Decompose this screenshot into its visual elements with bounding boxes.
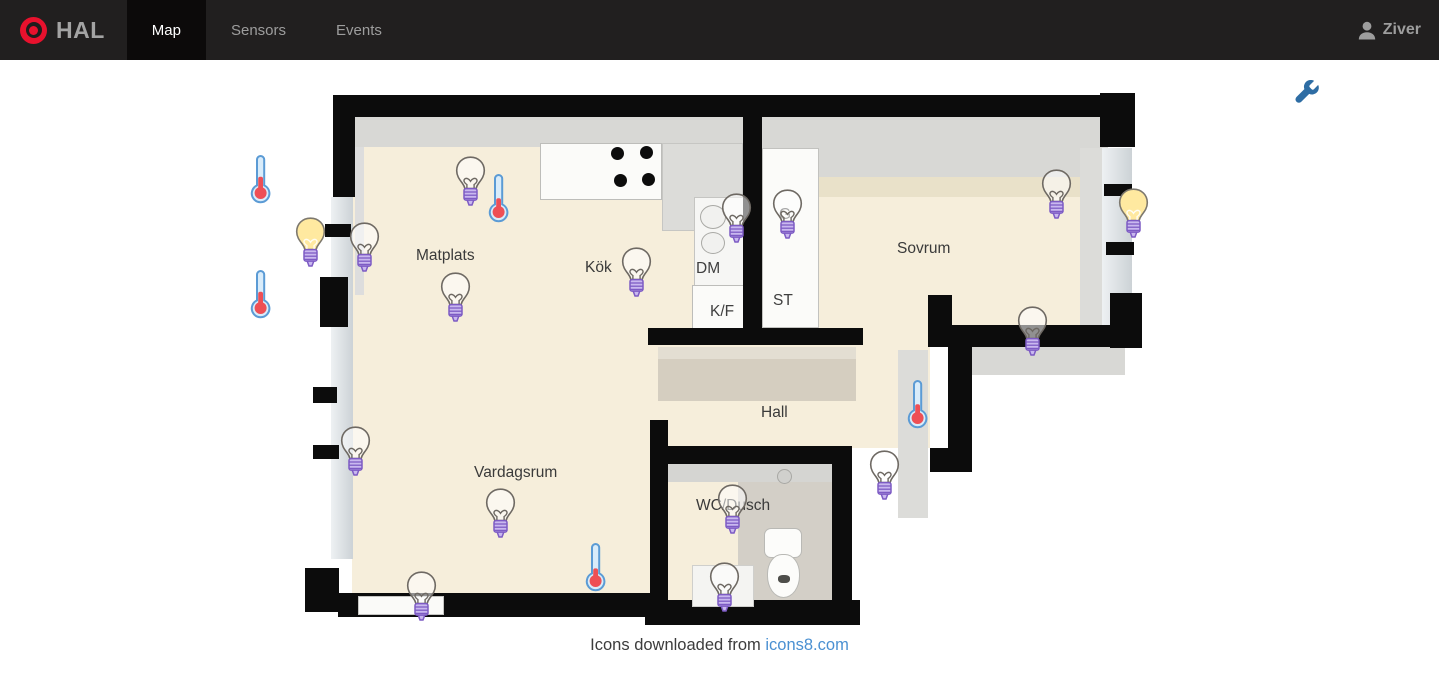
attribution: Icons downloaded from icons8.com: [0, 636, 1439, 655]
username: Ziver: [1383, 21, 1421, 39]
tab-sensors[interactable]: Sensors: [206, 0, 311, 60]
wall-hall-top: [648, 328, 863, 345]
stove-burner: [611, 147, 624, 160]
user-icon: [1357, 20, 1377, 41]
thermometer-icon[interactable]: [487, 171, 510, 223]
attribution-text: Icons downloaded from: [590, 636, 765, 654]
wall-top: [333, 95, 1135, 117]
hall-pillar: [898, 350, 928, 518]
stove-burner: [640, 146, 653, 159]
nav-tabs: MapSensorsEvents: [127, 0, 407, 60]
hall-wardrobe-top: [658, 347, 856, 359]
icons8-link[interactable]: icons8.com: [765, 636, 848, 654]
room-label-sovrum: Sovrum: [897, 240, 950, 258]
wall-left-top: [333, 95, 355, 197]
stove-burner: [614, 174, 627, 187]
tab-events[interactable]: Events: [311, 0, 407, 60]
bulb-off-icon[interactable]: [620, 246, 653, 299]
tab-map[interactable]: Map: [127, 0, 206, 60]
bulb-off-icon[interactable]: [868, 449, 901, 502]
room-label-kk: Kök: [585, 259, 612, 277]
floorplan-map: MatplatsKökSovrumHallVardagsrumWC/DuschD…: [0, 0, 1439, 675]
bulb-off-icon[interactable]: [720, 192, 753, 245]
brand: HAL: [0, 0, 127, 60]
thermometer-icon[interactable]: [584, 540, 607, 592]
bulb-off-icon[interactable]: [716, 483, 749, 536]
thermometer-icon[interactable]: [249, 267, 272, 319]
bulb-off-icon[interactable]: [439, 271, 472, 324]
wall-left-stub: [313, 387, 337, 403]
app: MatplatsKökSovrumHallVardagsrumWC/DuschD…: [0, 0, 1439, 675]
wall-hall-right: [948, 347, 972, 472]
bulb-on-icon[interactable]: [1117, 187, 1150, 240]
bulb-on-icon[interactable]: [294, 216, 327, 269]
toilet-button: [778, 575, 790, 583]
appliance-label-kf: K/F: [710, 303, 734, 321]
bulb-off-icon[interactable]: [405, 570, 438, 623]
wall-left-stub: [313, 445, 339, 459]
wall-sovrum-bottomright: [1110, 293, 1142, 348]
floor-hall-passage: [863, 300, 928, 345]
bulb-off-icon[interactable]: [1040, 168, 1073, 221]
wall-wc-top: [664, 446, 834, 464]
bulb-off-icon[interactable]: [454, 155, 487, 208]
bulb-off-icon[interactable]: [484, 487, 517, 540]
appliance-label-dm: DM: [696, 260, 720, 278]
bulb-off-icon[interactable]: [348, 221, 381, 274]
wall-wc-left: [650, 420, 668, 603]
thermometer-icon[interactable]: [906, 377, 929, 429]
user-menu[interactable]: Ziver: [1339, 0, 1439, 60]
wrench-icon: [1293, 80, 1320, 107]
bulb-off-icon[interactable]: [339, 425, 372, 478]
navbar: HAL MapSensorsEvents Ziver: [0, 0, 1439, 60]
appliance-label-st: ST: [773, 292, 793, 310]
wall-left-bottom-corner: [305, 568, 339, 612]
room-label-vardagsrum: Vardagsrum: [474, 464, 557, 482]
bulb-off-icon[interactable]: [771, 188, 804, 241]
wall-left-block: [320, 277, 348, 327]
bulb-off-icon[interactable]: [1016, 305, 1049, 358]
room-label-hall: Hall: [761, 404, 788, 422]
stove-burner: [642, 173, 655, 186]
hall-wardrobe: [658, 359, 856, 401]
wall-sovrum-topright-corner: [1100, 93, 1135, 147]
wall-wc-right: [832, 446, 852, 604]
wall-window-mullion: [1106, 242, 1134, 255]
thermometer-icon[interactable]: [249, 152, 272, 204]
map-edit-button[interactable]: [1293, 80, 1320, 110]
room-label-matplats: Matplats: [416, 247, 475, 265]
hal-logo-icon: [20, 17, 47, 44]
bulb-off-icon[interactable]: [708, 561, 741, 614]
wall-hall-right-foot: [930, 448, 950, 472]
shower-head: [777, 469, 792, 484]
brand-name: HAL: [56, 17, 105, 44]
wall-face-sovrum-right: [1080, 148, 1104, 346]
